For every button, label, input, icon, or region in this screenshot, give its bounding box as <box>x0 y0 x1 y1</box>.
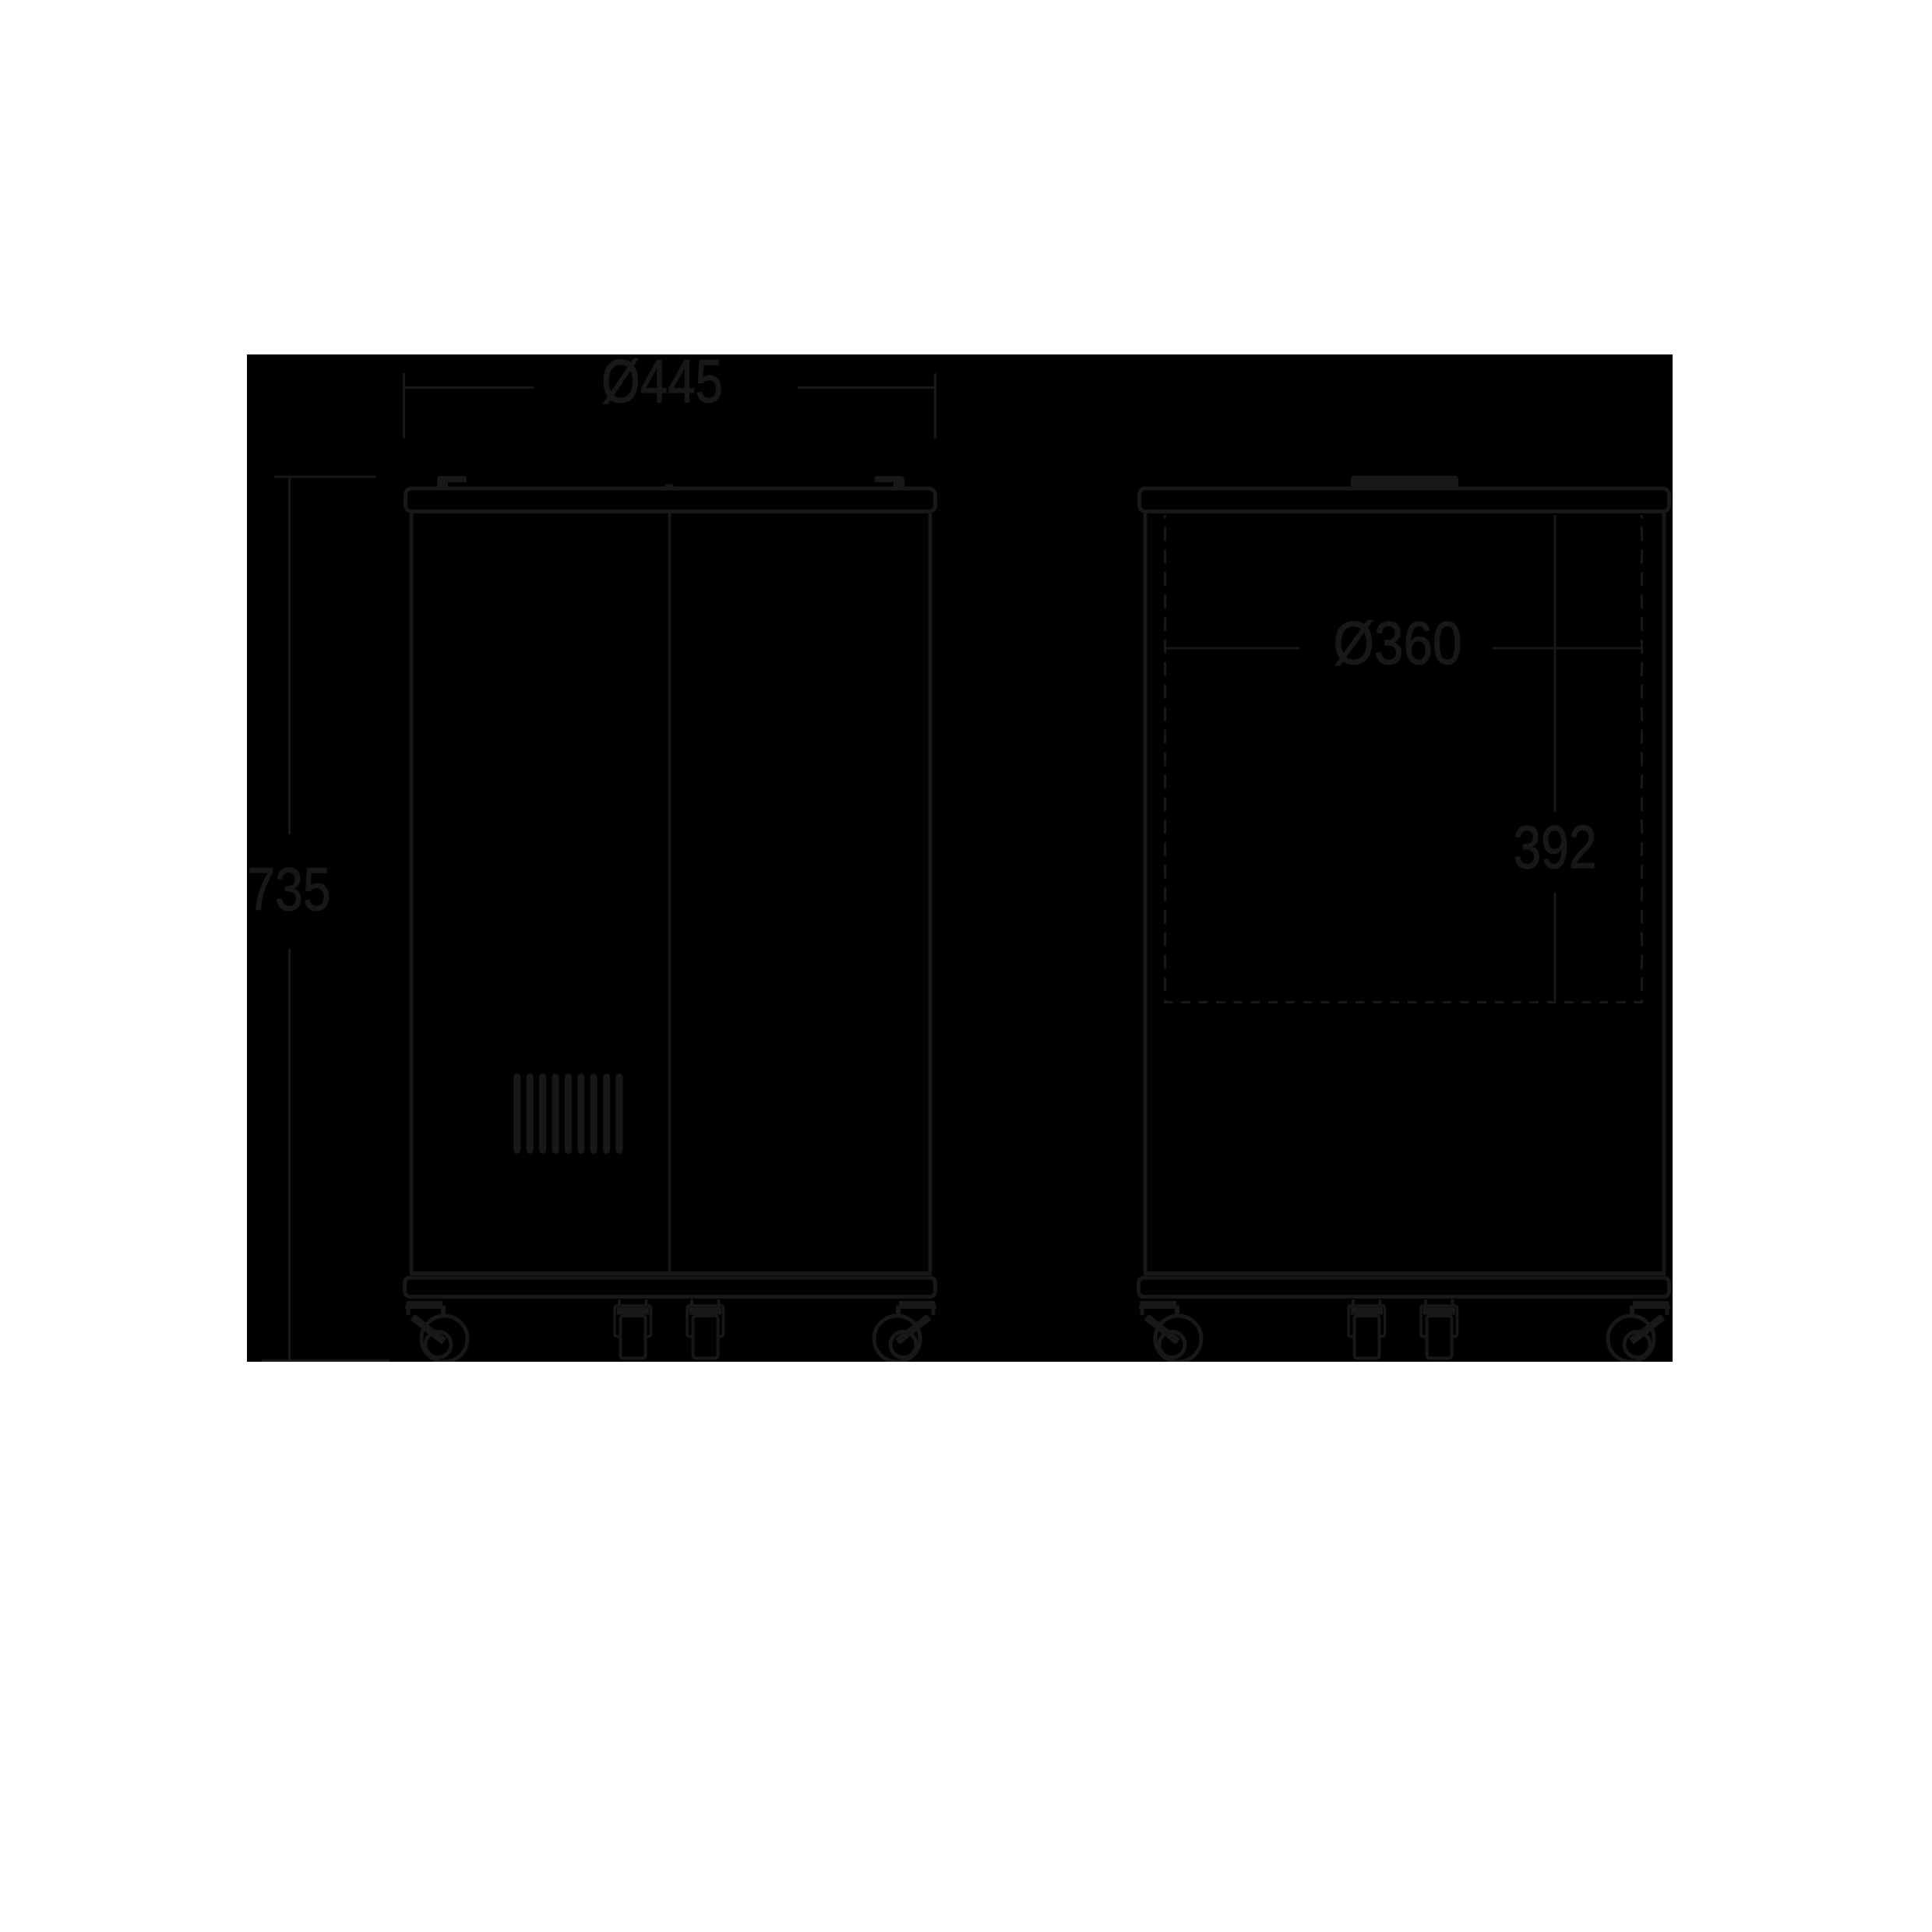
svg-text:Ø360: Ø360 <box>1334 608 1462 677</box>
svg-text:735: 735 <box>248 855 331 923</box>
svg-text:392: 392 <box>1514 813 1597 881</box>
svg-text:Ø445: Ø445 <box>601 347 723 415</box>
